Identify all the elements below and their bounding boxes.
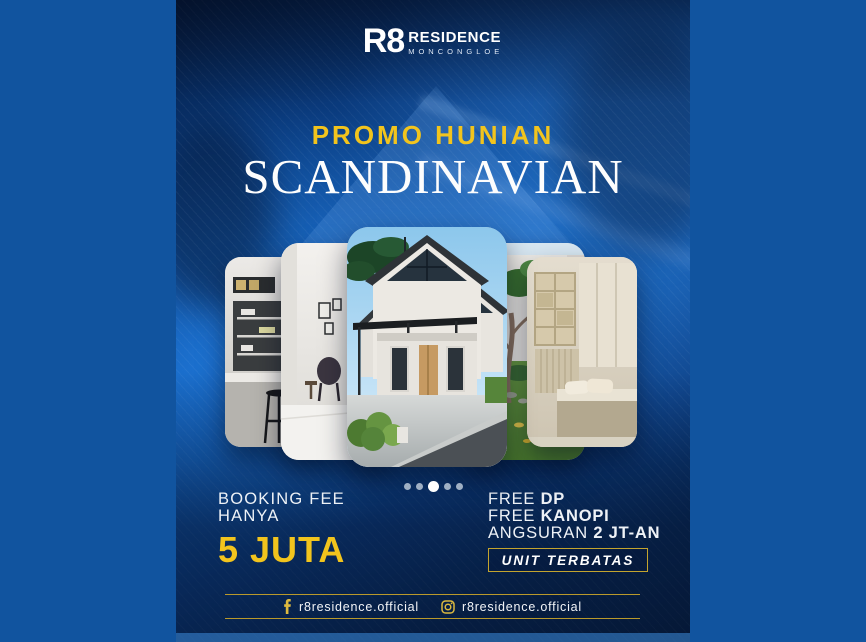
- booking-offer: BOOKING FEE HANYA 5 JUTA: [218, 491, 345, 571]
- promo-title: SCANDINAVIAN: [176, 148, 690, 205]
- benefit-text: FREE: [488, 490, 541, 508]
- carousel-dot-2[interactable]: [416, 483, 423, 490]
- benefit-text: FREE: [488, 507, 541, 525]
- instagram-handle-text: r8residence.official: [462, 600, 582, 614]
- carousel-dot-3[interactable]: [428, 481, 439, 492]
- brand-logo: R8 RESIDENCE MONCONGLOE: [176, 24, 690, 58]
- brand-logo-text: RESIDENCE MONCONGLOE: [408, 26, 503, 56]
- brand-location: MONCONGLOE: [408, 48, 503, 56]
- carousel-card-bedroom[interactable]: [527, 257, 637, 447]
- facebook-handle[interactable]: r8residence.official: [283, 599, 419, 614]
- promo-kicker: PROMO HUNIAN: [176, 120, 690, 151]
- unit-terbatas-badge: UNIT TERBATAS: [488, 548, 648, 572]
- carousel-dots: [176, 481, 690, 492]
- benefit-text: ANGSURAN: [488, 524, 593, 542]
- carousel-dot-5[interactable]: [456, 483, 463, 490]
- benefit-angsuran: ANGSURAN 2 JT-AN: [488, 525, 660, 542]
- promo-benefits: FREE DP FREE KANOPI ANGSURAN 2 JT-AN UNI…: [488, 491, 660, 572]
- benefit-text-bold: 2 JT-AN: [593, 524, 660, 542]
- benefit-text-bold: DP: [541, 490, 566, 508]
- carousel-dot-4[interactable]: [444, 483, 451, 490]
- facebook-handle-text: r8residence.official: [299, 600, 419, 614]
- carousel-dot-1[interactable]: [404, 483, 411, 490]
- footer-social-bar: r8residence.official r8residence.officia…: [225, 594, 640, 619]
- instagram-icon: [441, 600, 455, 614]
- brand-name: RESIDENCE: [408, 30, 503, 45]
- facebook-icon: [283, 599, 292, 614]
- booking-fee-label: BOOKING FEE: [218, 491, 345, 508]
- instagram-handle[interactable]: r8residence.official: [441, 600, 582, 614]
- brand-logo-mark: R8: [363, 24, 404, 58]
- benefit-free-kanopi: FREE KANOPI: [488, 508, 660, 525]
- carousel-card-house-exterior[interactable]: [347, 227, 507, 467]
- background-bottom-strip: [176, 633, 690, 642]
- booking-hanya-label: HANYA: [218, 508, 345, 525]
- benefit-free-dp: FREE DP: [488, 491, 660, 508]
- benefit-text-bold: KANOPI: [541, 507, 610, 525]
- promo-poster: R8 RESIDENCE MONCONGLOE PROMO HUNIAN SCA…: [176, 0, 690, 642]
- booking-amount: 5 JUTA: [218, 529, 345, 571]
